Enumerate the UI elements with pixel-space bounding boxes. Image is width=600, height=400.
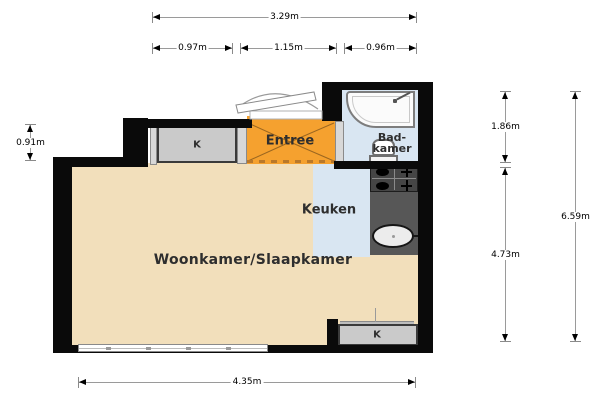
- arrow-down-icon: [572, 334, 578, 341]
- window-mullion: [106, 347, 111, 350]
- wall-bath-bottom: [334, 161, 418, 169]
- entry-door: [228, 78, 328, 122]
- window-mullion: [226, 347, 231, 350]
- closet-top-label: K: [193, 140, 201, 151]
- window-mullion: [186, 347, 191, 350]
- dimension-right-upper: 1.86m: [499, 91, 512, 163]
- dimension-label: 4.35m: [231, 377, 264, 387]
- dimension-right-lower: 4.73m: [499, 167, 512, 342]
- door-leaf: [236, 92, 316, 113]
- arrow-left-icon: [79, 379, 86, 385]
- window-frame: [267, 345, 268, 351]
- wall-left: [53, 157, 72, 353]
- room-label-woonkamer: Woonkamer/Slaapkamer: [154, 252, 353, 268]
- arrow-right-icon: [408, 379, 415, 385]
- window-mullion: [146, 347, 151, 350]
- arrow-right-icon: [329, 45, 336, 51]
- floorplan-canvas: Woonkamer/Slaapkamer Keuken Entree Bad- …: [0, 0, 600, 400]
- stove-burner-icon: [376, 182, 389, 190]
- stove: [370, 165, 418, 192]
- dimension-label: 0.96m: [364, 43, 397, 53]
- dimension-label: 4.73m: [489, 250, 522, 260]
- stove-grid: [372, 178, 416, 179]
- arrow-up-icon: [502, 92, 508, 99]
- arrow-down-icon: [27, 153, 33, 160]
- dimension-label: 1.15m: [272, 43, 305, 53]
- closet-slider-tick: [375, 308, 376, 322]
- dimension-top-mid: 1.15m: [240, 42, 337, 55]
- door-threshold: [250, 111, 322, 119]
- arrow-down-icon: [502, 334, 508, 341]
- arrow-left-icon: [241, 45, 248, 51]
- dimension-label: 1.86m: [489, 122, 522, 132]
- dimension-top-right: 0.96m: [344, 42, 417, 55]
- sink-drain-icon: [392, 235, 395, 238]
- dimension-label: 0.97m: [176, 43, 209, 53]
- dimension-label: 6.59m: [559, 212, 592, 222]
- window: [78, 344, 268, 352]
- dimension-label: 3.29m: [268, 12, 301, 22]
- dimension-top-total: 3.29m: [152, 11, 417, 24]
- arrow-left-icon: [153, 14, 160, 20]
- arrow-up-icon: [572, 92, 578, 99]
- room-label-badkamer: Bad- kamer: [372, 132, 411, 154]
- entree-threshold: [247, 160, 335, 163]
- closet-bottom-label: K: [373, 330, 381, 341]
- dimension-top-left: 0.97m: [152, 42, 233, 55]
- closet-end-panel: [150, 124, 157, 165]
- window-frame: [78, 345, 79, 351]
- stove-burner-icon: [376, 168, 389, 176]
- wall-closet-left: [327, 319, 338, 347]
- wall-right: [418, 82, 433, 353]
- bath-faucet-head-icon: [393, 99, 397, 103]
- dimension-bottom: 4.35m: [78, 376, 416, 389]
- room-label-keuken: Keuken: [302, 203, 356, 218]
- bathtub-rim: [352, 96, 410, 123]
- arrow-up-icon: [27, 125, 33, 132]
- dimension-left: 0.91m: [24, 124, 37, 161]
- dimension-label: 0.91m: [14, 138, 47, 148]
- arrow-left-icon: [345, 45, 352, 51]
- entree-right-door: [335, 121, 344, 164]
- room-label-entree: Entree: [266, 134, 314, 149]
- dimension-right-total: 6.59m: [569, 91, 582, 342]
- closet-slider-door: [340, 321, 414, 324]
- arrow-down-icon: [502, 155, 508, 162]
- stove-burner-icon: [401, 180, 412, 191]
- badkamer-label-line2: kamer: [372, 143, 411, 154]
- arrow-left-icon: [153, 45, 160, 51]
- arrow-right-icon: [409, 14, 416, 20]
- arrow-right-icon: [409, 45, 416, 51]
- arrow-up-icon: [502, 168, 508, 175]
- arrow-right-icon: [225, 45, 232, 51]
